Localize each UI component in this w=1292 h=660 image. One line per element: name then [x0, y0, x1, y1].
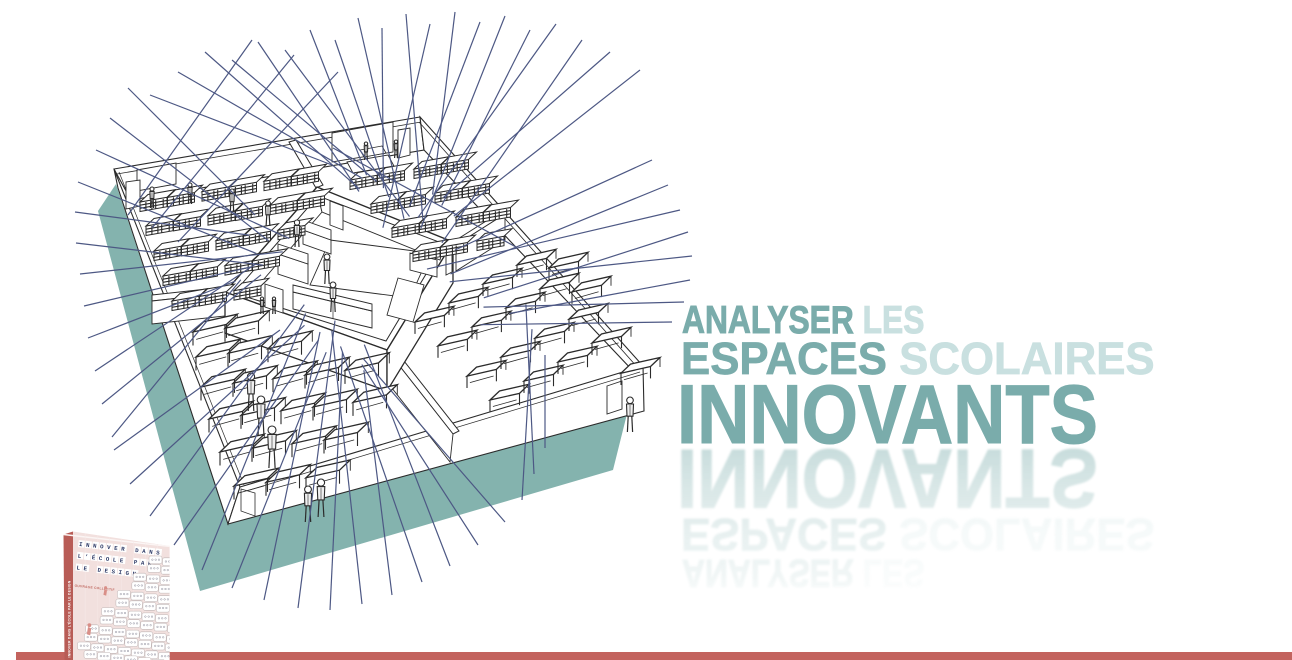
svg-text:’: ’: [84, 553, 88, 560]
svg-text:INNOVER DANS L’ÉCOLE PAR LE DE: INNOVER DANS L’ÉCOLE PAR LE DESIGN: [66, 580, 71, 657]
